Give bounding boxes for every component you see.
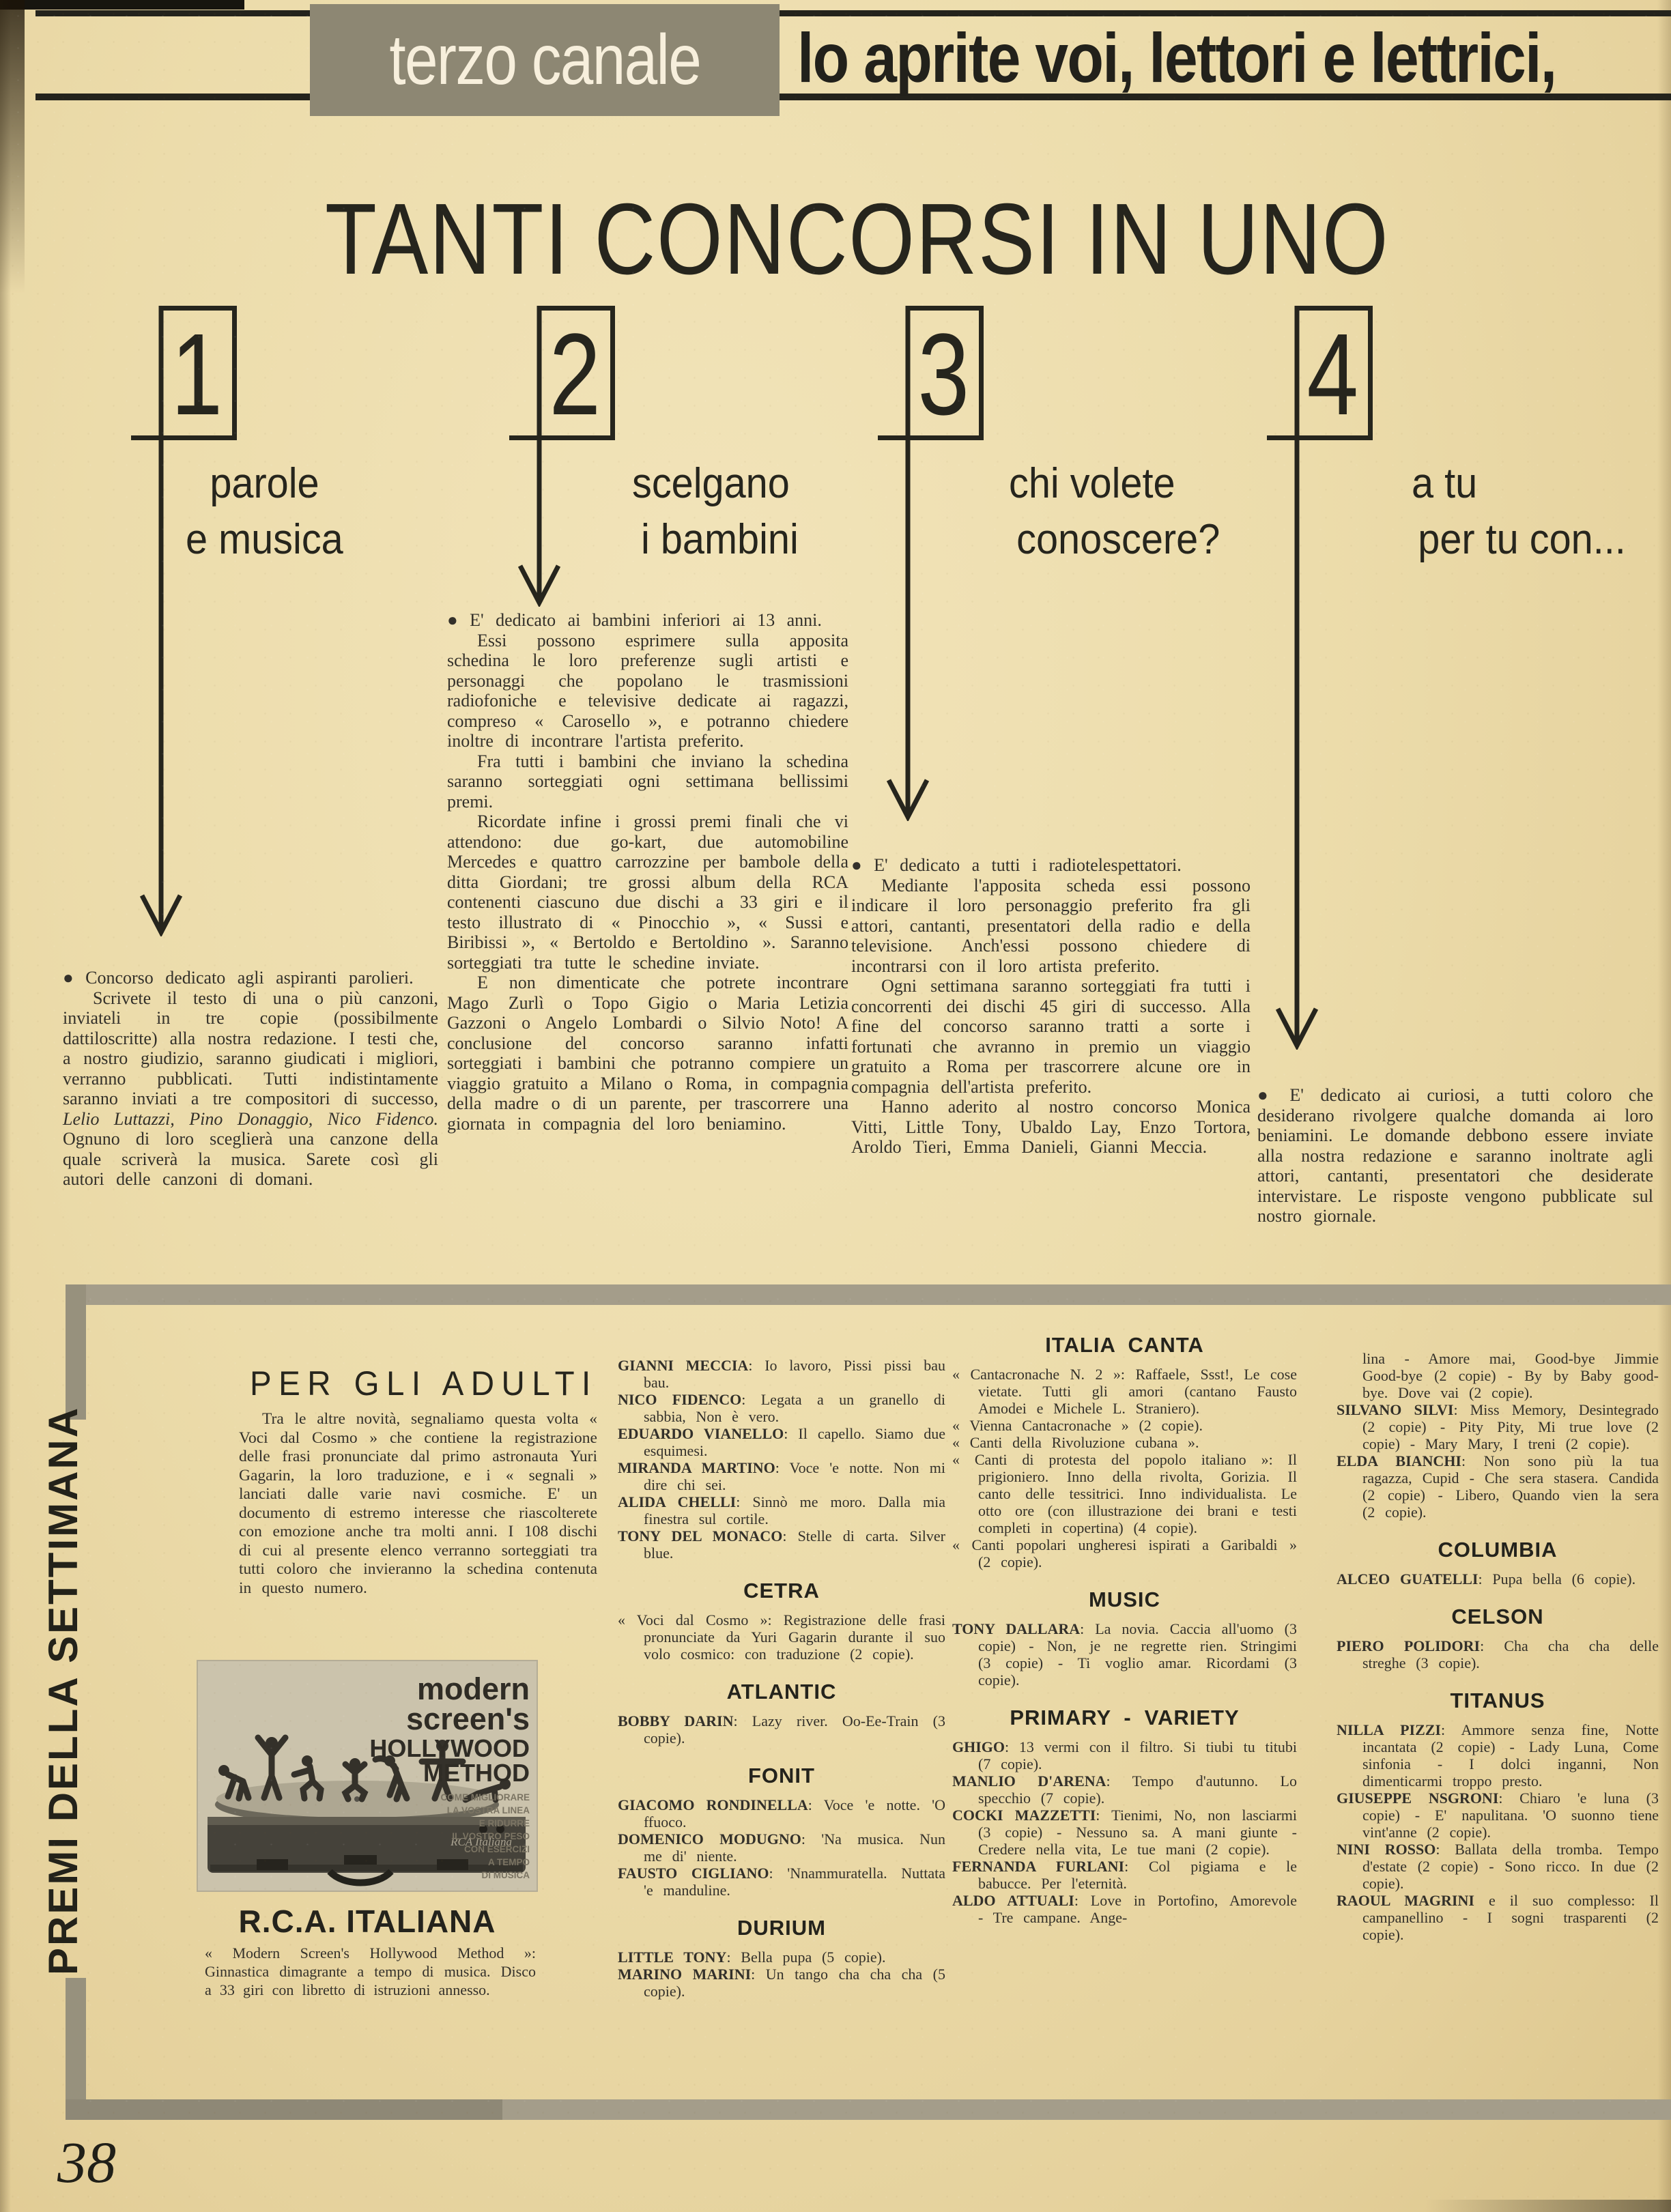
contest-3-body: ● E' dedicato a tutti i radiotelespettat… [851,855,1251,1158]
record-label-heading: ATLANTIC [618,1683,945,1700]
contest-subtitle-line: chi volete [1009,456,1220,512]
cover-subtitle-line: LA VOSTRA LINEA [447,1805,530,1815]
contest-subtitle: a tu per tu con... [1412,456,1626,568]
record-label-name: R.C.A. ITALIANA [197,1903,538,1940]
contest-2-body: ● E' dedicato ai bambini inferiori ai 13… [447,610,848,1134]
list-item: FAUSTO CIGLIANO: 'Nnammuratella. Nuttata… [618,1865,945,1899]
prizes-frame-bottom-accent [66,2099,502,2120]
spine-shadow [0,0,25,293]
adults-heading: PER GLI ADULTI [250,1364,598,1403]
list-item: BOBBY DARIN: Lazy river. Oo-Ee-Train (3 … [618,1712,945,1747]
contest-1-body: ● Concorso dedicato agli aspiranti parol… [63,968,438,1190]
magazine-page: terzo canale lo aprite voi, lettori e le… [0,0,1671,2212]
paragraph: ● E' dedicato a tutti i radiotelespettat… [851,855,1251,876]
record-label-heading: TITANUS [1337,1692,1659,1709]
prizes-frame-top [66,1284,1671,1305]
brand-block: terzo canale [310,4,780,116]
list-item: ALIDA CHELLI: Sinnò me moro. Dalla mia f… [618,1493,945,1527]
cover-subtitle-line: DI MUSICA [482,1870,530,1880]
paragraph-text: Ognuno di loro sceglierà una canzone del… [63,1129,438,1189]
brand-title: terzo canale [389,20,700,101]
paragraph: E non dimenticate che potrete incontrare… [447,973,848,1134]
cover-subtitle-line: COME MIGLIORARE [441,1792,530,1802]
down-arrow-icon [134,306,188,936]
prize-list-column-3: ITALIA CANTA « Cantacronache N. 2 »: Raf… [952,1336,1297,1926]
contest-subtitle: chi volete conoscere? [1009,456,1220,568]
record-label-heading: CELSON [1337,1608,1659,1625]
paragraph: ● E' dedicato ai curiosi, a tutti coloro… [1257,1085,1653,1226]
prizes-frame-left-top [66,1284,86,1420]
list-item: « Voci dal Cosmo »: Registrazione delle … [618,1611,945,1663]
list-item: NILLA PIZZI: Ammore senza fine, Notte in… [1337,1721,1659,1790]
list-item: GIANNI MECCIA: Io lavoro, Pissi pissi ba… [618,1357,945,1391]
contest-subtitle: parole e musica [186,456,343,568]
prizes-frame-left-bottom [66,1978,86,2120]
paragraph: Scrivete il testo di una o più canzoni, … [63,988,438,1190]
list-item: « Cantacronache N. 2 »: Raffaele, Ssst!,… [952,1366,1297,1417]
paragraph: ● E' dedicato ai bambini inferiori ai 13… [447,610,848,631]
list-item: COCKI MAZZETTI: Tienimi, No, non lasciar… [952,1807,1297,1858]
down-arrow-icon [1270,306,1324,1050]
contest-subtitle: scelgano i bambini [632,456,799,568]
record-label-heading: CETRA [618,1582,945,1599]
record-label-heading: MUSIC [952,1591,1297,1608]
page-top-edge [0,0,244,10]
prizes-vertical-title: PREMI DELLA SETTIMANA [40,1421,87,1975]
composer-names-italic: Lelio Luttazzi, Pino Donaggio, Nico Fide… [63,1109,438,1129]
paragraph: Fra tutti i bambini che inviano la sched… [447,751,848,812]
record-label-heading: COLUMBIA [1337,1541,1659,1558]
record-caption: « Modern Screen's Hollywood Method »: Gi… [205,1944,536,1999]
list-item: « Canti di protesta del popolo italiano … [952,1451,1297,1536]
header-rule-top [35,10,1671,16]
list-item: NICO FIDENCO: Legata a un granello di sa… [618,1391,945,1425]
list-item: GIACOMO RONDINELLA: Voce 'e notte. 'O ff… [618,1796,945,1830]
prize-list-column-4: lina - Amore mai, Good-bye Jimmie Good-b… [1337,1350,1659,1943]
list-item: lina - Amore mai, Good-bye Jimmie Good-b… [1337,1350,1659,1401]
paragraph: Mediante l'apposita scheda essi possono … [851,876,1251,977]
header-tagline: lo aprite voi, lettori e lettrici, [797,20,1556,96]
page-title: TANTI CONCORSI IN UNO [325,182,1389,298]
list-item: NINI ROSSO: Ballata della tromba. Tempo … [1337,1841,1659,1892]
record-label-heading: DURIUM [618,1919,945,1936]
page-bottom-corner-shadow [1425,2200,1671,2212]
contest-subtitle-line: per tu con... [1412,512,1626,568]
list-item: GHIGO: 13 vermi con il filtro. Si tiubi … [952,1738,1297,1772]
down-arrow-icon [512,306,567,607]
record-label-heading: PRIMARY - VARIETY [952,1709,1297,1726]
list-item: EDUARDO VIANELLO: Il capello. Siamo due … [618,1425,945,1459]
paragraph-text: Scrivete il testo di una o più canzoni, … [63,988,438,1109]
list-item: ELDA BIANCHI: Non sono più la tua ragazz… [1337,1452,1659,1521]
list-item: « Canti della Rivoluzione cubana ». [952,1434,1297,1451]
page-number: 38 [57,2128,116,2196]
cover-subtitle-line: IL VOSTRO PESO [452,1831,530,1841]
paragraph-text: ● Concorso dedicato agli aspiranti parol… [63,968,414,988]
cover-subtitle-line: E RIDURRE [479,1818,530,1828]
list-item: ALDO ATTUALI: Love in Portofino, Amorevo… [952,1892,1297,1926]
down-arrow-icon [881,306,935,821]
record-label-heading: FONIT [618,1767,945,1784]
contest-subtitle-line: a tu [1412,456,1626,512]
contest-subtitle-line: i bambini [632,512,799,568]
list-item: DOMENICO MODUGNO: 'Na musica. Nun me di'… [618,1830,945,1865]
list-item: RAOUL MAGRINI e il suo complesso: Il cam… [1337,1892,1659,1943]
cover-title-line: METHOD [423,1759,530,1787]
list-item: « Canti popolari ungheresi ispirati a Ga… [952,1536,1297,1570]
contest-subtitle-line: conoscere? [1009,512,1220,568]
page-left-edge [0,0,11,2212]
contest-subtitle-line: scelgano [632,456,799,512]
contest-4-body: ● E' dedicato ai curiosi, a tutti coloro… [1257,1085,1653,1226]
cover-subtitle-line: CON ESERCIZI [464,1844,530,1854]
list-item: TONY DEL MONACO: Stelle di carta. Silver… [618,1527,945,1562]
record-cover-image: RCA Italiana modern screen's HOLLYWOOD M… [197,1660,538,1892]
list-item: GIUSEPPE NSGRONI: Chiaro 'e luna (3 copi… [1337,1790,1659,1841]
list-item: SILVANO SILVI: Miss Memory, Desintegrado… [1337,1401,1659,1452]
paragraph: Ogni settimana saranno sorteggiati fra t… [851,976,1251,1097]
list-item: « Vienna Cantacronache » (2 copie). [952,1417,1297,1434]
contest-subtitle-line: e musica [186,512,343,568]
list-item: MANLIO D'ARENA: Tempo d'autunno. Lo spec… [952,1772,1297,1807]
record-label-heading: ITALIA CANTA [952,1336,1297,1353]
prize-list-column-2: GIANNI MECCIA: Io lavoro, Pissi pissi ba… [618,1357,945,2000]
page-right-edge [1657,0,1671,2212]
list-item: FERNANDA FURLANI: Col pigiama e le babuc… [952,1858,1297,1892]
paragraph: Ricordate infine i grossi premi finali c… [447,811,848,973]
list-item: TONY DALLARA: La novia. Caccia all'uomo … [952,1620,1297,1689]
paragraph: ● Concorso dedicato agli aspiranti parol… [63,968,438,988]
cover-subtitle-line: A TEMPO [488,1857,530,1867]
list-item: ALCEO GUATELLI: Pupa bella (6 copie). [1337,1570,1659,1588]
list-item: LITTLE TONY: Bella pupa (5 copie). [618,1949,945,1966]
cover-title-line: screen's [406,1701,530,1736]
list-item: PIERO POLIDORI: Cha cha cha delle stregh… [1337,1637,1659,1671]
cover-title-line: HOLLYWOOD [369,1734,530,1762]
paragraph: Hanno aderito al nostro concorso Monica … [851,1097,1251,1158]
contest-subtitle-line: parole [186,456,343,512]
list-item: MIRANDA MARTINO: Voce 'e notte. Non mi d… [618,1459,945,1493]
list-item: MARINO MARINI: Un tango cha cha cha (5 c… [618,1966,945,2000]
paragraph: Essi possono esprimere sulla apposita sc… [447,631,848,751]
adults-intro: Tra le altre novità, segnaliamo questa v… [239,1410,597,1598]
